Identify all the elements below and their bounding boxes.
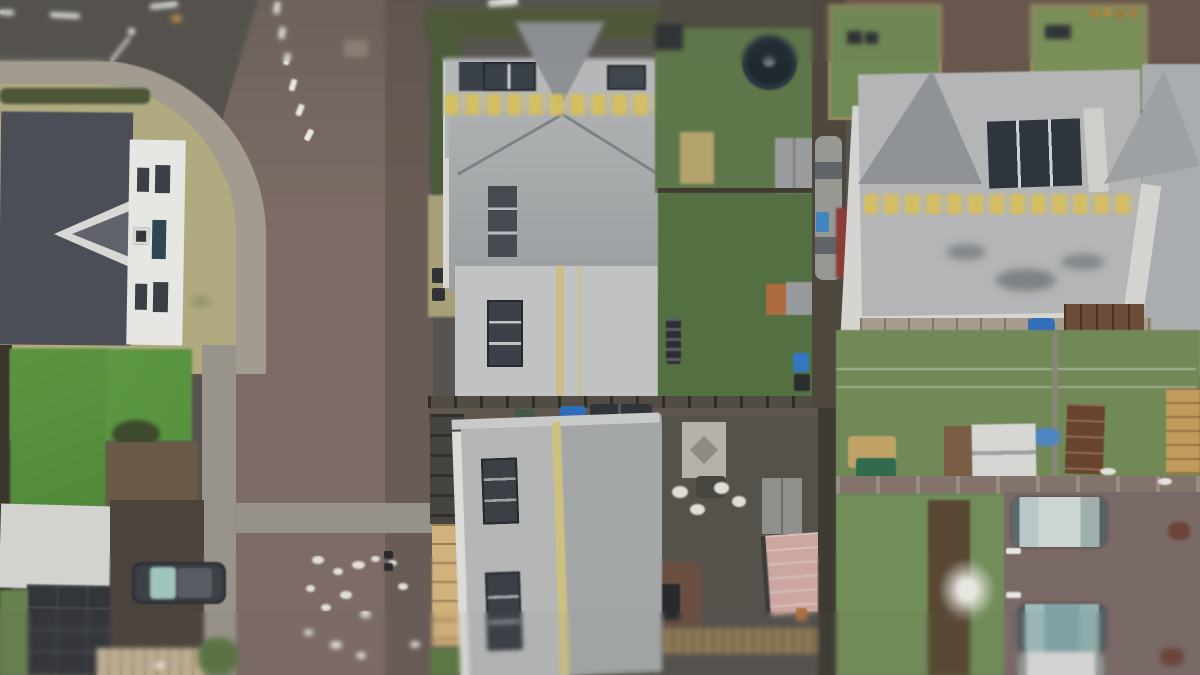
bird-droppings xyxy=(155,662,165,669)
grass-strip xyxy=(0,590,28,675)
chimney-pot-stack xyxy=(666,318,681,364)
boundary-fence-dark xyxy=(818,408,836,675)
pink-garden-building xyxy=(760,532,823,616)
window-teal xyxy=(152,220,167,259)
street-lamp-head xyxy=(128,28,135,35)
rooflight-panel xyxy=(607,65,646,90)
bird-droppings xyxy=(321,604,331,611)
parking-bay-mark xyxy=(1006,548,1021,554)
wheelie-bin xyxy=(432,288,445,301)
extension-rooflight xyxy=(487,300,523,367)
window xyxy=(133,228,149,245)
white-garage-roof xyxy=(0,504,114,591)
artificial-turf-garden-lower xyxy=(10,349,106,507)
trampoline-centre xyxy=(763,57,775,67)
bird-droppings xyxy=(410,641,420,648)
driveway-parked-car xyxy=(132,562,226,604)
roof-slope-right xyxy=(560,414,671,674)
drain-dots xyxy=(384,563,393,571)
bins xyxy=(847,31,862,44)
road-light-patch xyxy=(344,40,368,57)
orange-item xyxy=(796,608,807,621)
rear-patio xyxy=(106,442,198,506)
rooflight-panel xyxy=(459,62,536,91)
furniture-chair xyxy=(714,482,729,494)
bird-droppings xyxy=(352,561,365,569)
lichen-ridge-line xyxy=(556,266,564,398)
trampoline xyxy=(742,35,797,90)
rooflight xyxy=(485,571,523,650)
tan-trailer xyxy=(1166,388,1200,474)
left-house-white-facade xyxy=(126,140,186,346)
bird-droppings xyxy=(333,568,343,575)
parked-teal-car xyxy=(1018,604,1106,652)
lichen-ridge-line-faint xyxy=(577,266,582,398)
rooflight xyxy=(481,457,519,524)
bird-droppings xyxy=(1100,468,1116,475)
courtyard xyxy=(662,416,820,675)
garden-shed-dark xyxy=(655,24,683,50)
white-shed xyxy=(971,423,1036,482)
bins xyxy=(1045,25,1071,39)
roof-stain xyxy=(946,244,986,260)
straw-patch xyxy=(680,132,714,184)
garden-store-grey xyxy=(786,282,814,315)
dark-wheelie-bin xyxy=(794,374,810,391)
flower-row xyxy=(1089,7,1141,20)
rear-garden-upper xyxy=(655,28,818,193)
pavement-vertical xyxy=(202,345,236,675)
bird-droppings xyxy=(312,556,324,564)
rust-patch xyxy=(1160,648,1184,666)
rust-patch xyxy=(1168,522,1190,540)
timber-deck xyxy=(662,628,818,654)
shed-grey-roof xyxy=(762,478,802,534)
car-windscreen xyxy=(150,567,176,599)
solar-panel-array xyxy=(987,118,1082,188)
roof-stain xyxy=(1061,254,1105,270)
parking-bay-mark xyxy=(1006,592,1021,598)
bird-droppings xyxy=(398,583,408,590)
aerial-photo: Top-down overcast aerial view of a resid… xyxy=(0,0,1200,675)
pedestrian-crossing-band xyxy=(234,503,432,533)
window xyxy=(153,282,169,312)
road-gutter-strip xyxy=(385,0,433,675)
bird-droppings xyxy=(371,556,380,562)
right-house xyxy=(846,64,1200,326)
patio-mat xyxy=(682,422,726,478)
clothesline xyxy=(836,386,1196,388)
bird-droppings xyxy=(360,611,371,618)
bird-droppings xyxy=(304,629,313,636)
hip-roof-lower xyxy=(449,110,667,292)
fence-shadow-strip xyxy=(660,0,820,30)
bird-droppings xyxy=(340,591,352,599)
lichen-band xyxy=(864,194,1136,214)
blue-bin xyxy=(816,212,829,232)
car-roof xyxy=(178,568,212,598)
brown-gate xyxy=(1065,403,1105,474)
bottom-centre-house xyxy=(452,412,669,675)
bins xyxy=(865,32,878,44)
garden-divider-fence xyxy=(1052,332,1058,492)
bird-droppings xyxy=(1158,478,1172,485)
timber-deck-strip xyxy=(96,648,206,675)
bird-droppings xyxy=(306,585,315,592)
centre-house xyxy=(443,22,669,272)
window xyxy=(155,165,170,193)
furniture-chair xyxy=(672,486,688,498)
furniture-chair xyxy=(690,504,705,515)
furniture-chair xyxy=(732,496,746,507)
blossom-shrub xyxy=(938,558,996,622)
lichen-band xyxy=(445,94,667,115)
clothesline-lawn xyxy=(836,330,1200,492)
rear-garden-lower xyxy=(658,193,818,400)
window xyxy=(137,168,149,192)
parked-white-car xyxy=(1018,652,1104,675)
rear-window xyxy=(488,186,517,257)
parked-suv xyxy=(1012,497,1107,547)
mat-diamond xyxy=(690,436,718,464)
bird-droppings xyxy=(356,652,366,659)
blue-wheelie-bin xyxy=(793,353,809,372)
road-mark xyxy=(488,0,518,7)
garden-store-orange xyxy=(766,284,786,315)
road-centre-line xyxy=(0,10,14,16)
dark-store xyxy=(662,584,680,620)
roof-stain xyxy=(996,269,1056,291)
blue-toy xyxy=(1034,428,1060,446)
clothesline xyxy=(836,368,1196,370)
window xyxy=(135,284,147,310)
shrub xyxy=(198,638,238,675)
green-storage-box xyxy=(856,458,896,478)
drain-dots xyxy=(384,551,393,559)
bird-droppings xyxy=(330,641,342,649)
front-hedge xyxy=(0,88,150,104)
centre-house-extension-roof xyxy=(455,266,658,401)
road-patch xyxy=(171,14,182,23)
